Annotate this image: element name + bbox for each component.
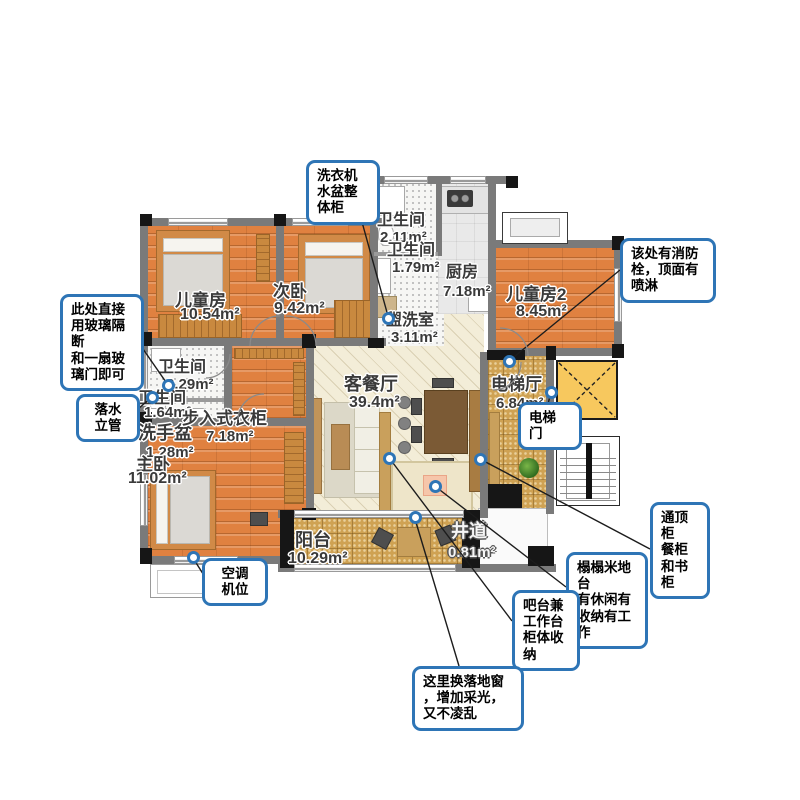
dining-chair-5 [432,378,454,388]
wardrobe-second [334,300,374,338]
laundry-counter [376,258,391,294]
window-kids1 [168,218,228,226]
label-laundry-area: 3.11m² [391,329,438,346]
wardrobe-master [284,432,304,504]
dining-table [424,390,468,454]
shaft-block-bottom [528,546,554,566]
callout-fire-hydrant[interactable]: 该处有消防 栓，顶面有 喷淋 [620,238,716,303]
label-living-name: 客餐厅 [344,370,398,396]
label-kids2-name: 儿童房2 [506,280,566,305]
label-second-area: 9.42m² [274,300,325,318]
callout-downpipe[interactable]: 落水 立管 [76,394,140,442]
anchor-downpipe[interactable] [146,391,159,404]
label-bath-top2-area: 1.79m² [392,259,440,276]
staircase-rail [586,443,592,499]
callout-elevator-door[interactable]: 电梯 门 [518,402,582,450]
floor-plan-canvas: 儿童房 10.54m² 次卧 9.42m² 卫生间 2.11m² 卫生间 1.7… [0,0,800,800]
label-bath-top1-name: 卫生间 [377,206,425,230]
column-13 [368,338,384,348]
anchor-ac[interactable] [187,551,200,564]
label-bath-top2-name: 卫生间 [387,236,435,260]
sofa [354,406,380,494]
column-9 [140,548,152,564]
anchor-washer[interactable] [382,312,395,325]
anchor-elevator-door[interactable] [545,386,558,399]
closet-shelf-right [293,362,305,416]
anchor-cabinet[interactable] [474,453,487,466]
callout-ceiling-cabinet[interactable]: 通顶 柜 餐柜 和书 柜 [650,502,710,599]
window-kitchen [450,176,486,184]
decor-circle-3 [398,441,411,454]
decor-circle-2 [398,417,411,430]
label-second-name: 次卧 [273,277,307,302]
shoe-cabinet [489,412,500,492]
bay-window-inner [510,218,560,237]
bed-second-pillow [305,242,363,256]
window-balcony-door [294,510,464,518]
wall-living-hall [480,352,488,518]
plant-icon [519,458,539,478]
callout-washer-cabinet[interactable]: 洗衣机 水盆整 体柜 [306,160,380,225]
label-living-area: 39.4m² [349,394,400,412]
label-kids1-area: 10.54m² [180,306,240,324]
label-hall-name: 电梯厅 [491,370,542,395]
wall-bath-kitchen [436,184,442,256]
label-kitchen-name: 厨房 [446,258,478,282]
column-6 [612,344,624,358]
callout-ac-unit[interactable]: 空调 机位 [202,558,268,606]
callout-glass-partition[interactable]: 此处直接 用玻璃隔 断 和一扇玻 璃门即可 [60,294,144,391]
label-shaft-area: 0.81m² [448,544,496,561]
callout-floor-window[interactable]: 这里换落地窗 ，增加采光， 又不凌乱 [412,666,524,731]
column-10 [302,334,316,348]
anchor-glass[interactable] [162,379,175,392]
balcony-table [397,527,431,557]
stove-icon [447,190,473,207]
column-4 [506,176,518,188]
label-kids2-area: 8.45m² [516,303,567,321]
label-closet-area: 7.18m² [206,428,254,445]
anchor-bar[interactable] [383,452,396,465]
dining-chair-1 [411,398,422,415]
label-master-area: 11.02m² [128,470,187,488]
anchor-window[interactable] [409,511,422,524]
column-2 [274,214,286,226]
label-balcony-name: 阳台 [295,526,331,552]
dining-chair-2 [411,426,422,443]
shaft-block-top [488,484,522,508]
anchor-tatami[interactable] [429,480,442,493]
window-bath-top [384,176,428,184]
label-balcony-area: 10.29m² [288,550,348,568]
wall-master-living [306,342,314,518]
callout-bar-worktable[interactable]: 吧台兼 工作台 柜体收 纳 [512,590,580,671]
wall-under-bedrooms [140,338,386,346]
desk-kids1 [256,234,270,282]
label-shaft-name: 井道 [451,517,487,543]
label-bath-left1-name: 卫生间 [158,353,206,377]
coffee-table [331,424,350,470]
label-closet-name: 步入式衣柜 [182,404,267,429]
column-1 [140,214,152,226]
column-12 [546,346,556,360]
label-kitchen-area: 7.18m² [443,283,491,300]
closet-shelf-top [234,348,304,359]
bed-kids1-pillow [163,238,223,252]
anchor-fire[interactable] [503,355,516,368]
wall-kitchen-kids2 [488,180,496,358]
stool-master [250,512,268,526]
